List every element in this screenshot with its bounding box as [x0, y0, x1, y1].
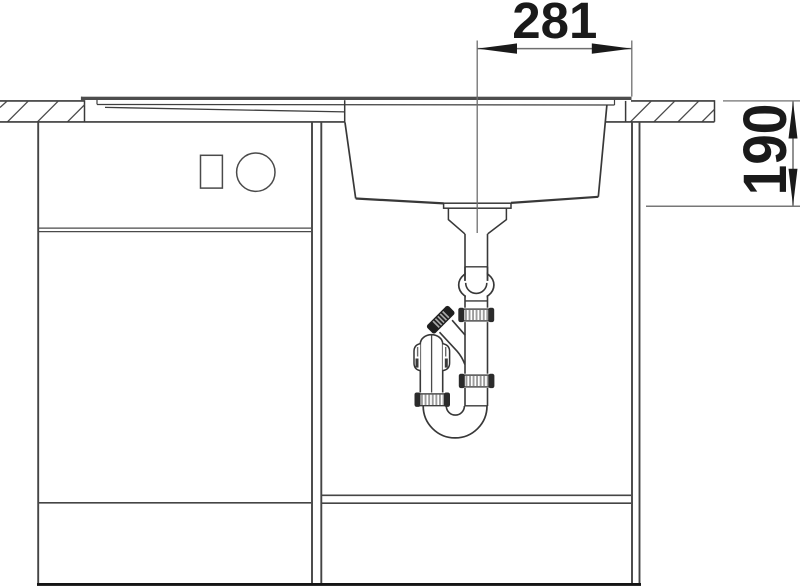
svg-text:281: 281: [512, 0, 597, 49]
svg-text:190: 190: [731, 104, 799, 196]
